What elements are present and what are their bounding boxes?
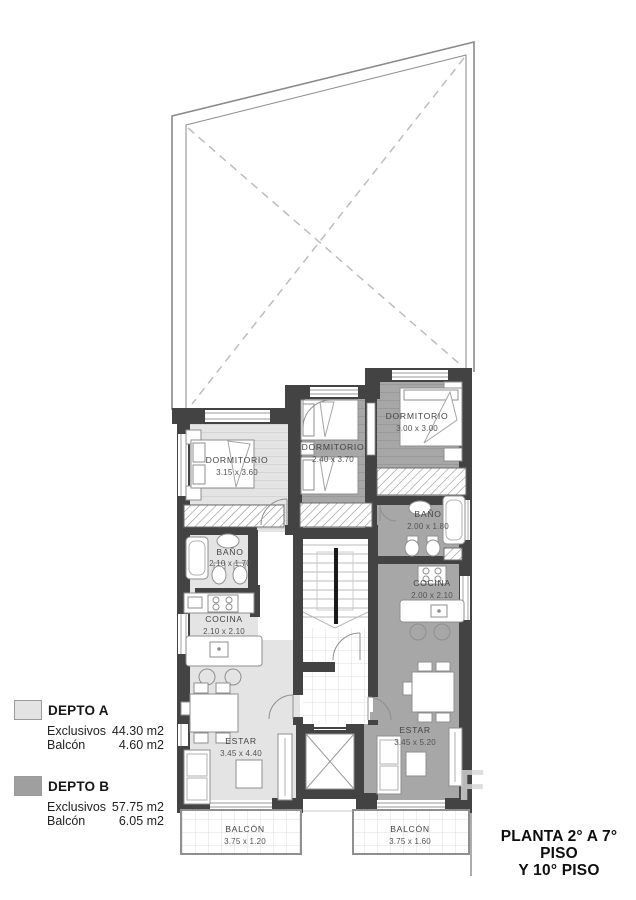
chair <box>194 683 208 693</box>
stove-a <box>208 595 238 612</box>
label-bano-a: BAÑO <box>216 547 243 557</box>
sink-a <box>217 534 239 548</box>
lot-diagonal-cross <box>188 58 464 404</box>
dims-balcon-a: 3.75 x 1.20 <box>224 837 266 846</box>
watermark-letter: F <box>458 761 485 810</box>
chair <box>418 713 432 722</box>
label-bano-b: BAÑO <box>414 509 441 519</box>
dims-dormitorio-b2: 3.00 x 3.00 <box>396 424 438 433</box>
dims-cocina-b: 2.00 x 2.10 <box>411 591 453 600</box>
dims-bano-b: 2.00 x 1.80 <box>407 522 449 531</box>
nightstand <box>444 448 462 461</box>
toilet-a <box>212 566 226 584</box>
label-cocina-a: COCINA <box>205 614 243 624</box>
dining-table-b <box>412 672 454 712</box>
exclusivos-value: 57.75 m2 <box>112 800 164 814</box>
legend-depto-b: DEPTO B Exclusivos 57.75 m2 Balcón 6.05 … <box>14 776 164 828</box>
exclusivos-value: 44.30 m2 <box>112 724 164 738</box>
plan-title: PLANTA 2° A 7° PISO Y 10° PISO <box>486 828 632 879</box>
depto-a-name: DEPTO A <box>48 703 109 718</box>
label-estar-b: ESTAR <box>399 725 431 735</box>
depto-b-swatch <box>14 776 42 796</box>
chair <box>194 733 208 743</box>
toilet-b <box>405 540 419 556</box>
label-dormitorio-a: DORMITORIO <box>206 455 269 465</box>
dims-estar-a: 3.45 x 4.40 <box>220 749 262 758</box>
window-left-estar-a <box>178 724 188 746</box>
chair <box>436 662 450 671</box>
window-dormitorio-a <box>205 410 270 422</box>
dims-cocina-a: 2.10 x 2.10 <box>203 627 245 636</box>
label-dormitorio-b2: DORMITORIO <box>386 411 449 421</box>
depto-a-exclusivos-row: Exclusivos 44.30 m2 <box>14 724 164 738</box>
window-dormitorio-b2 <box>392 370 448 380</box>
window-dormitorio-b1 <box>310 387 358 397</box>
closet-dormitorio-a <box>184 505 284 527</box>
depto-a-balcon-row: Balcón 4.60 m2 <box>14 738 164 752</box>
wardrobe-niche <box>367 403 375 455</box>
depto-b-balcon-row: Balcón 6.05 m2 <box>14 814 164 828</box>
chair <box>403 682 412 695</box>
balcon-label: Balcón <box>47 738 85 752</box>
label-cocina-b: COCINA <box>413 578 451 588</box>
balcon-value: 4.60 m2 <box>119 738 164 752</box>
window-balcony-door-b <box>377 800 445 810</box>
bidet-a <box>233 566 247 584</box>
label-balcon-b: BALCÓN <box>390 824 430 834</box>
stair-rail <box>334 548 338 624</box>
dims-estar-b: 3.45 x 5.20 <box>394 738 436 747</box>
chair <box>216 683 230 693</box>
sofa-a <box>184 750 210 804</box>
chair <box>181 702 190 715</box>
dims-dormitorio-b1: 2.40 x 3.70 <box>312 455 354 464</box>
closet-bano-b <box>444 548 462 560</box>
legend: DEPTO A Exclusivos 44.30 m2 Balcón 4.60 … <box>14 700 164 852</box>
dims-bano-a: 2.10 x 1.70 <box>209 559 251 568</box>
exclusivos-label: Exclusivos <box>47 800 106 814</box>
lobby-tiles <box>303 628 368 723</box>
legend-depto-a: DEPTO A Exclusivos 44.30 m2 Balcón 4.60 … <box>14 700 164 752</box>
dims-balcon-b: 3.75 x 1.60 <box>389 837 431 846</box>
exclusivos-label: Exclusivos <box>47 724 106 738</box>
depto-a-swatch <box>14 700 42 720</box>
closet-dormitorio-b1 <box>300 503 372 527</box>
depto-b-exclusivos-row: Exclusivos 57.75 m2 <box>14 800 164 814</box>
coffee-table-a <box>236 760 262 788</box>
dining-table-a <box>190 694 238 732</box>
label-balcon-a: BALCÓN <box>225 824 265 834</box>
label-estar-a: ESTAR <box>225 736 257 746</box>
balcon-label: Balcón <box>47 814 85 828</box>
chair <box>436 713 450 722</box>
elevator <box>296 724 364 813</box>
label-dormitorio-b1: DORMITORIO <box>302 442 365 452</box>
dims-dormitorio-a: 3.15 x 3.60 <box>216 468 258 477</box>
bidet-b <box>426 540 440 556</box>
balcon-value: 6.05 m2 <box>119 814 164 828</box>
plan-title-line1: PLANTA 2° A 7° PISO <box>486 828 632 862</box>
armchair-b <box>406 752 426 776</box>
window-balcony-door-a <box>210 800 272 810</box>
plan-title-line2: Y 10° PISO <box>486 862 632 879</box>
closet-dormitorio-b2 <box>377 468 466 495</box>
stair-core <box>300 537 370 724</box>
kitchen-sink-a <box>188 597 202 608</box>
chair <box>418 662 432 671</box>
depto-b-name: DEPTO B <box>48 779 109 794</box>
